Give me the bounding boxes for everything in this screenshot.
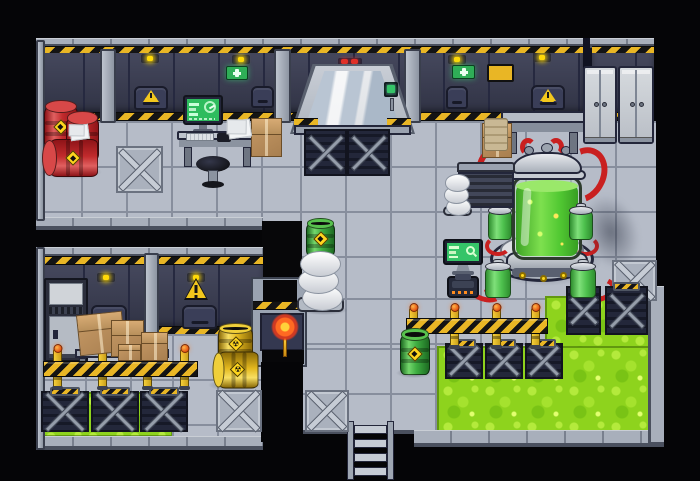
desk-leg [184, 147, 192, 167]
ceiling-light [141, 54, 159, 63]
workbench-top [501, 111, 586, 123]
wall-pillar [144, 253, 159, 336]
coil-duct [297, 250, 344, 312]
acid-edge-grate [605, 286, 648, 335]
wall-hatch [446, 86, 468, 109]
vent-grate [347, 129, 390, 176]
stool-base [202, 181, 224, 188]
platform-light [560, 272, 567, 279]
door-lamp-bulb [351, 59, 358, 64]
coil-duct [443, 174, 472, 216]
red-barrel-lying[interactable]: ◆ [42, 139, 98, 177]
cardboard-box[interactable] [141, 332, 168, 361]
barricade-tape [43, 361, 198, 377]
workbench-apron [503, 123, 584, 132]
vent-grate [304, 129, 347, 176]
exit-sign [452, 65, 475, 79]
floor-x-panel [216, 390, 262, 432]
robot-unit[interactable] [447, 276, 479, 298]
ceiling-light [232, 55, 250, 64]
wall-pillar [100, 49, 116, 123]
console-screen [447, 243, 479, 261]
floor-x-panel [305, 390, 349, 432]
locker-cabinet[interactable] [618, 66, 654, 144]
cloth [484, 118, 508, 151]
wall-hatch [182, 305, 217, 329]
cardboard-box[interactable] [118, 344, 141, 361]
ladder[interactable] [347, 421, 394, 480]
pit [261, 362, 303, 442]
reactor-canister[interactable] [569, 259, 597, 298]
door-lamp-bulb [341, 59, 348, 64]
radioactive-barrel-lying[interactable]: ☢ [212, 351, 258, 388]
lid-knob [524, 146, 534, 155]
desk-leg [243, 147, 251, 167]
ceiling-light [533, 53, 551, 62]
keyboard [186, 133, 214, 141]
reactor-canister[interactable] [487, 203, 513, 240]
locker-cabinet[interactable] [583, 66, 617, 144]
cabinet-handle [53, 330, 58, 339]
acid-ledge [648, 286, 664, 446]
wall-hatch-warning [134, 86, 168, 110]
platform-light [519, 272, 526, 279]
toxic-barrel[interactable]: ◆ [400, 328, 430, 375]
papers [69, 124, 90, 141]
wall-torch[interactable] [269, 313, 300, 360]
game-level-map: ◆◆◆☢☢◆◆ [0, 0, 700, 481]
caution-sign [487, 64, 514, 82]
reactor-canister[interactable] [568, 203, 594, 240]
cardboard-box[interactable] [251, 118, 282, 157]
acid-edge-grate [91, 391, 139, 432]
platform-light [540, 275, 547, 282]
door-opening [263, 280, 297, 301]
desk-monitor[interactable] [183, 95, 223, 125]
reactor-lid [512, 152, 582, 174]
wall-hatch [251, 86, 274, 108]
exit-sign [226, 66, 248, 80]
acid-edge-grate [140, 391, 188, 432]
floor-x-panel [116, 146, 163, 193]
workbench-leg [569, 132, 578, 154]
lid-knob [541, 143, 553, 153]
ceiling-light [448, 55, 466, 64]
ceiling-light [97, 273, 115, 282]
wall-hatch-warning [531, 85, 565, 110]
acid-ledge [414, 430, 664, 447]
reactor-canister[interactable] [484, 259, 512, 298]
gap [262, 221, 302, 281]
monitor-screen [187, 99, 219, 121]
wall-pillar [274, 49, 291, 123]
papers [227, 118, 252, 139]
door-button[interactable] [384, 82, 399, 111]
floor-edge-ledge [36, 217, 263, 230]
acid-edge-grate [41, 391, 89, 432]
console-monitor[interactable] [443, 239, 483, 265]
room-bottom-ledge [36, 436, 263, 450]
